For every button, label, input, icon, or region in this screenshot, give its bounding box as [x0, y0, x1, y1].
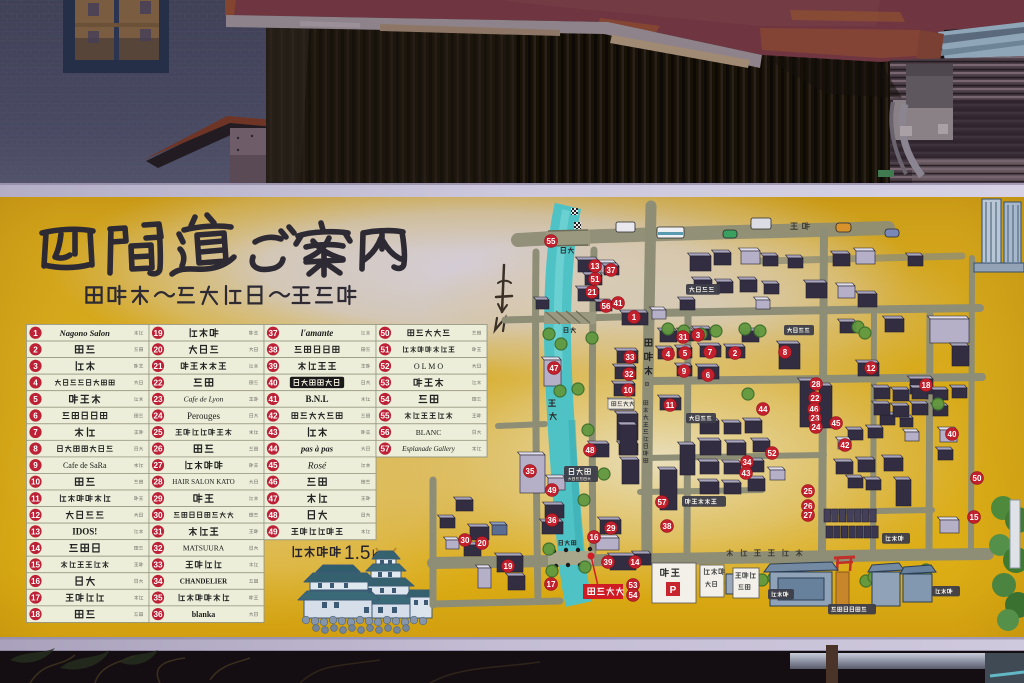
svg-text:13: 13: [591, 262, 600, 271]
svg-text:27: 27: [804, 511, 813, 520]
svg-text:21: 21: [588, 288, 597, 297]
svg-text:19: 19: [504, 562, 513, 571]
svg-text:3: 3: [33, 362, 38, 371]
svg-text:MATSUURA: MATSUURA: [183, 544, 225, 553]
svg-text:1: 1: [632, 313, 637, 322]
svg-text:25: 25: [153, 428, 163, 437]
svg-text:24: 24: [153, 412, 163, 421]
svg-text:24: 24: [812, 423, 821, 432]
svg-text:29: 29: [153, 494, 163, 503]
svg-text:O L M O: O L M O: [414, 362, 443, 371]
svg-text:B.N.L: B.N.L: [305, 394, 328, 404]
svg-text:Cafe de Lyon: Cafe de Lyon: [184, 395, 224, 404]
svg-text:10: 10: [31, 478, 41, 487]
svg-text:2: 2: [733, 349, 738, 358]
svg-text:11: 11: [31, 494, 40, 503]
svg-text:1.5: 1.5: [344, 543, 370, 564]
svg-text:blanka: blanka: [192, 610, 216, 619]
svg-text:18: 18: [922, 381, 931, 390]
svg-text:33: 33: [153, 560, 163, 569]
svg-text:5: 5: [683, 349, 688, 358]
svg-text:pas à pas: pas à pas: [300, 444, 334, 454]
svg-text:10: 10: [624, 386, 633, 395]
svg-text:30: 30: [153, 511, 163, 520]
svg-text:55: 55: [380, 412, 390, 421]
svg-text:Nagono Salon: Nagono Salon: [59, 328, 111, 338]
svg-text:40: 40: [948, 430, 957, 439]
svg-text:40: 40: [268, 378, 278, 387]
svg-text:54: 54: [380, 395, 390, 404]
svg-text:9: 9: [682, 367, 687, 376]
svg-text:20: 20: [478, 539, 487, 548]
svg-text:12: 12: [31, 511, 41, 520]
svg-text:45: 45: [832, 419, 841, 428]
svg-text:42: 42: [268, 412, 278, 421]
svg-text:46: 46: [268, 478, 278, 487]
svg-text:32: 32: [153, 544, 163, 553]
svg-text:52: 52: [768, 449, 777, 458]
svg-text:17: 17: [31, 594, 41, 603]
svg-text:Cafe de SaRa: Cafe de SaRa: [63, 461, 107, 470]
svg-text:12: 12: [867, 364, 876, 373]
svg-text:6: 6: [33, 412, 38, 421]
svg-text:Rosé: Rosé: [307, 462, 327, 472]
svg-text:23: 23: [153, 395, 163, 404]
svg-text:31: 31: [153, 527, 163, 536]
svg-text:14: 14: [31, 544, 41, 553]
svg-text:21: 21: [153, 362, 163, 371]
svg-text:49: 49: [548, 486, 557, 495]
svg-text:4: 4: [33, 378, 38, 387]
svg-text:26: 26: [153, 445, 163, 454]
svg-text:Esplanade Gallery: Esplanade Gallery: [401, 445, 456, 453]
svg-text:7: 7: [33, 428, 38, 437]
svg-text:47: 47: [550, 364, 559, 373]
svg-text:51: 51: [591, 275, 600, 284]
svg-text:48: 48: [586, 446, 595, 455]
svg-text:15: 15: [970, 513, 979, 522]
svg-text:38: 38: [663, 522, 672, 531]
svg-text:47: 47: [268, 494, 278, 503]
svg-text:5: 5: [33, 395, 38, 404]
svg-text:34: 34: [153, 577, 163, 586]
svg-text:56: 56: [380, 428, 390, 437]
svg-text:Perouges: Perouges: [187, 411, 220, 421]
svg-text:22: 22: [153, 378, 163, 387]
svg-text:37: 37: [268, 329, 278, 338]
svg-text:13: 13: [31, 527, 41, 536]
svg-text:22: 22: [811, 394, 820, 403]
svg-text:41: 41: [614, 299, 623, 308]
svg-text:54: 54: [629, 591, 638, 600]
svg-text:HAIR SALON KATO: HAIR SALON KATO: [172, 478, 234, 486]
svg-text:28: 28: [153, 478, 163, 487]
svg-text:2: 2: [33, 345, 38, 354]
svg-text:56: 56: [602, 302, 611, 311]
svg-text:39: 39: [604, 558, 613, 567]
svg-text:11: 11: [666, 401, 675, 410]
svg-text:49: 49: [268, 527, 278, 536]
svg-text:29: 29: [607, 524, 616, 533]
svg-text:BLANC: BLANC: [416, 428, 441, 437]
svg-text:16: 16: [31, 577, 41, 586]
svg-text:3: 3: [696, 331, 701, 340]
svg-text:CHANDELIER: CHANDELIER: [180, 578, 228, 586]
svg-text:36: 36: [153, 610, 163, 619]
svg-text:37: 37: [607, 266, 616, 275]
svg-text:57: 57: [380, 445, 390, 454]
svg-text:44: 44: [268, 445, 278, 454]
svg-text:15: 15: [31, 560, 41, 569]
svg-text:50: 50: [973, 474, 982, 483]
svg-text:35: 35: [526, 467, 535, 476]
svg-text:43: 43: [268, 428, 278, 437]
svg-text:18: 18: [31, 610, 41, 619]
svg-text:33: 33: [626, 353, 635, 362]
svg-text:25: 25: [804, 487, 813, 496]
svg-text:4: 4: [666, 350, 671, 359]
svg-text:43: 43: [742, 469, 751, 478]
svg-text:31: 31: [679, 333, 688, 342]
svg-text:52: 52: [380, 362, 390, 371]
svg-text:28: 28: [812, 380, 821, 389]
svg-text:27: 27: [153, 461, 163, 470]
svg-text:9: 9: [33, 461, 38, 470]
svg-text:41: 41: [268, 395, 278, 404]
svg-text:42: 42: [841, 441, 850, 450]
svg-text:20: 20: [153, 345, 163, 354]
svg-text:44: 44: [759, 405, 768, 414]
svg-text:35: 35: [153, 594, 163, 603]
svg-text:16: 16: [590, 533, 599, 542]
svg-text:30: 30: [461, 536, 470, 545]
svg-text:8: 8: [783, 348, 788, 357]
svg-text:19: 19: [153, 329, 163, 338]
svg-text:48: 48: [268, 511, 278, 520]
svg-text:1: 1: [33, 329, 38, 338]
svg-text:P: P: [670, 585, 677, 596]
svg-text:36: 36: [548, 516, 557, 525]
svg-text:53: 53: [380, 378, 390, 387]
svg-text:6: 6: [706, 371, 711, 380]
svg-text:IDOS!: IDOS!: [72, 527, 97, 537]
svg-text:32: 32: [625, 370, 634, 379]
svg-text:51: 51: [380, 345, 390, 354]
svg-text:14: 14: [631, 558, 640, 567]
svg-text:50: 50: [380, 329, 390, 338]
svg-text:57: 57: [658, 498, 667, 507]
svg-text:l'amante: l'amante: [301, 328, 334, 338]
svg-text:8: 8: [33, 445, 38, 454]
svg-text:55: 55: [547, 237, 556, 246]
svg-text:17: 17: [547, 580, 556, 589]
svg-text:38: 38: [268, 345, 278, 354]
svg-text:7: 7: [708, 348, 713, 357]
svg-text:34: 34: [743, 458, 752, 467]
svg-text:45: 45: [268, 461, 278, 470]
svg-text:39: 39: [268, 362, 278, 371]
